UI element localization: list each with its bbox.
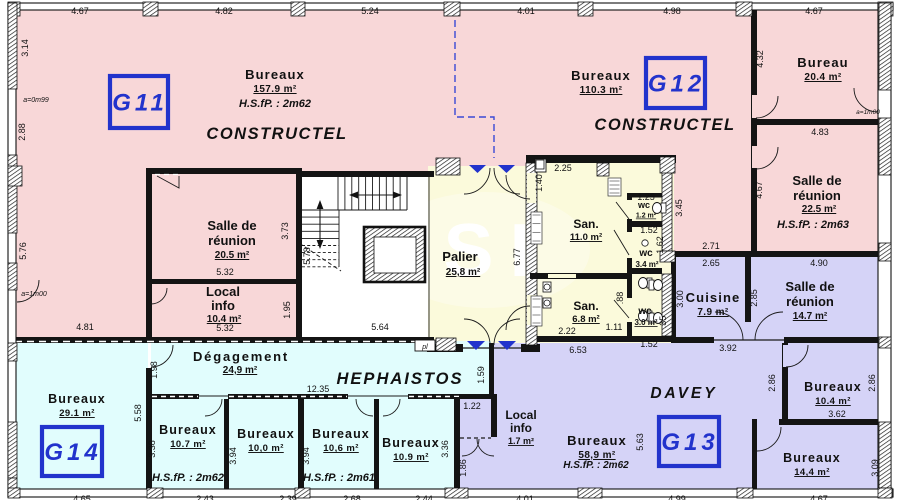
- svg-text:3.36: 3.36: [440, 440, 450, 458]
- svg-text:Salle de: Salle de: [207, 218, 256, 233]
- svg-text:Bureaux: Bureaux: [783, 451, 841, 465]
- svg-text:1.52: 1.52: [640, 225, 658, 235]
- svg-text:4.99: 4.99: [668, 494, 686, 500]
- svg-text:1.22: 1.22: [463, 401, 481, 411]
- svg-text:10,0 m²: 10,0 m²: [248, 443, 284, 454]
- svg-text:4.01: 4.01: [517, 6, 535, 16]
- svg-text:5.58: 5.58: [133, 404, 143, 422]
- svg-text:24,9 m²: 24,9 m²: [223, 365, 258, 376]
- svg-text:10.7 m²: 10.7 m²: [170, 439, 206, 450]
- svg-text:5.24: 5.24: [361, 6, 379, 16]
- svg-text:14,4 m²: 14,4 m²: [794, 467, 830, 478]
- svg-text:a=1m00: a=1m00: [21, 291, 47, 298]
- svg-text:a=1m00: a=1m00: [856, 109, 880, 116]
- svg-text:San.: San.: [573, 299, 598, 313]
- svg-text:2.25: 2.25: [554, 163, 572, 173]
- svg-text:5.63: 5.63: [635, 433, 645, 451]
- svg-text:25,8 m²: 25,8 m²: [446, 267, 481, 278]
- svg-text:3.38: 3.38: [147, 440, 157, 458]
- svg-text:Palier: Palier: [442, 249, 477, 264]
- svg-text:Bureaux: Bureaux: [382, 436, 440, 450]
- svg-text:wc: wc: [638, 248, 653, 259]
- svg-text:20.5 m²: 20.5 m²: [215, 250, 250, 261]
- svg-text:Bureaux: Bureaux: [567, 433, 627, 448]
- svg-text:a=0m99: a=0m99: [23, 97, 49, 104]
- svg-text:Local: Local: [505, 408, 536, 422]
- svg-text:info: info: [510, 421, 532, 435]
- svg-text:4.83: 4.83: [811, 127, 829, 137]
- svg-text:6.77: 6.77: [512, 248, 522, 266]
- svg-text:29.1 m²: 29.1 m²: [59, 408, 95, 419]
- svg-text:1.7 m²: 1.7 m²: [508, 436, 534, 446]
- svg-text:110.3 m²: 110.3 m²: [580, 85, 623, 96]
- svg-text:.35: .35: [658, 316, 668, 329]
- svg-text:.88: .88: [615, 292, 625, 305]
- svg-text:H.S.fP. : 2m62: H.S.fP. : 2m62: [563, 460, 629, 471]
- svg-text:wc: wc: [637, 306, 652, 317]
- svg-text:San.: San.: [573, 217, 598, 231]
- svg-text:1.95: 1.95: [282, 301, 292, 319]
- svg-text:4.67: 4.67: [754, 181, 764, 199]
- svg-text:3.14: 3.14: [20, 39, 30, 57]
- svg-text:G11: G11: [112, 90, 168, 117]
- svg-text:CONSTRUCTEL: CONSTRUCTEL: [206, 125, 347, 143]
- svg-text:2.44: 2.44: [415, 494, 433, 500]
- svg-text:2.22: 2.22: [558, 326, 576, 336]
- svg-text:2.65: 2.65: [702, 258, 720, 268]
- svg-text:info: info: [211, 298, 235, 313]
- svg-text:DAVEY: DAVEY: [650, 385, 717, 402]
- svg-text:Cuisine: Cuisine: [686, 290, 741, 305]
- svg-text:CONSTRUCTEL: CONSTRUCTEL: [594, 116, 735, 134]
- svg-text:H.S.fP. : 2m61: H.S.fP. : 2m61: [303, 472, 375, 484]
- svg-text:Bureaux: Bureaux: [237, 427, 295, 441]
- svg-text:3.4 m²: 3.4 m²: [635, 260, 658, 269]
- svg-text:2.86: 2.86: [767, 374, 777, 392]
- svg-text:G14: G14: [44, 439, 101, 466]
- svg-text:Salle de: Salle de: [792, 173, 841, 188]
- svg-text:22.5 m²: 22.5 m²: [802, 204, 837, 215]
- svg-text:réunion: réunion: [208, 233, 256, 248]
- svg-text:G12: G12: [648, 71, 705, 98]
- svg-text:10.4 m²: 10.4 m²: [815, 396, 851, 407]
- svg-text:4.67: 4.67: [810, 494, 828, 500]
- svg-text:3.92: 3.92: [719, 343, 737, 353]
- svg-text:1.59: 1.59: [476, 366, 486, 384]
- svg-text:réunion: réunion: [786, 294, 834, 309]
- svg-text:4.98: 4.98: [663, 6, 681, 16]
- svg-text:20.4 m²: 20.4 m²: [804, 72, 842, 83]
- svg-text:3.62: 3.62: [828, 409, 846, 419]
- svg-text:Dégagement: Dégagement: [193, 349, 289, 364]
- svg-text:pl: pl: [421, 344, 428, 351]
- svg-text:2.71: 2.71: [702, 241, 720, 251]
- svg-text:1.11: 1.11: [606, 322, 623, 332]
- svg-text:G13: G13: [661, 429, 718, 456]
- svg-text:H.S.fP. : 2m62: H.S.fP. : 2m62: [239, 98, 311, 110]
- svg-text:4.32: 4.32: [755, 50, 765, 68]
- svg-text:1.86: 1.86: [458, 459, 468, 477]
- svg-text:3.73: 3.73: [280, 222, 290, 240]
- svg-text:3.45: 3.45: [674, 199, 684, 217]
- svg-text:3.94: 3.94: [228, 447, 238, 465]
- svg-text:3.00: 3.00: [675, 290, 685, 308]
- svg-text:5.32: 5.32: [216, 267, 234, 277]
- svg-text:4.67: 4.67: [805, 6, 823, 16]
- svg-text:4.90: 4.90: [810, 258, 828, 268]
- svg-text:4.01: 4.01: [516, 494, 534, 500]
- svg-text:Bureaux: Bureaux: [159, 423, 217, 437]
- svg-text:5.64: 5.64: [371, 322, 389, 332]
- svg-text:157.9 m²: 157.9 m²: [253, 84, 296, 95]
- svg-text:6.8 m²: 6.8 m²: [572, 314, 599, 325]
- svg-text:4.65: 4.65: [73, 494, 91, 500]
- svg-text:1.98: 1.98: [149, 361, 159, 379]
- svg-text:6.53: 6.53: [569, 345, 587, 355]
- svg-text:4.81: 4.81: [76, 322, 94, 332]
- svg-text:Bureaux: Bureaux: [312, 427, 370, 441]
- svg-text:3.09: 3.09: [870, 459, 880, 477]
- svg-text:1.25: 1.25: [637, 192, 655, 202]
- svg-text:1.52: 1.52: [640, 339, 658, 349]
- svg-text:10.9 m²: 10.9 m²: [393, 452, 429, 463]
- svg-text:3.94: 3.94: [301, 447, 311, 465]
- svg-text:4.82: 4.82: [215, 6, 233, 16]
- svg-text:1.40: 1.40: [534, 174, 544, 192]
- svg-text:HEPHAISTOS: HEPHAISTOS: [337, 370, 464, 388]
- svg-text:5.78: 5.78: [302, 247, 312, 265]
- svg-text:Bureaux: Bureaux: [245, 67, 305, 82]
- svg-text:2.88: 2.88: [17, 123, 27, 141]
- svg-text:4.67: 4.67: [71, 6, 89, 16]
- svg-text:5.32: 5.32: [216, 323, 234, 333]
- svg-text:10,6 m²: 10,6 m²: [323, 443, 359, 454]
- svg-text:Bureaux: Bureaux: [48, 392, 106, 406]
- svg-text:7.9 m²: 7.9 m²: [697, 307, 729, 318]
- svg-text:Bureaux: Bureaux: [571, 68, 631, 83]
- svg-text:réunion: réunion: [793, 188, 841, 203]
- svg-text:Bureaux: Bureaux: [804, 380, 862, 394]
- svg-text:Bureau: Bureau: [797, 55, 848, 70]
- svg-text:Salle de: Salle de: [785, 279, 834, 294]
- svg-text:2.86: 2.86: [867, 374, 877, 392]
- svg-text:11.0 m²: 11.0 m²: [570, 232, 602, 243]
- svg-text:H.S.fP. : 2m63: H.S.fP. : 2m63: [777, 219, 849, 231]
- svg-text:Local: Local: [206, 284, 240, 299]
- svg-text:12.35: 12.35: [307, 384, 330, 394]
- svg-text:2.39: 2.39: [279, 494, 297, 500]
- svg-text:2.85: 2.85: [749, 289, 759, 307]
- svg-text:5.76: 5.76: [18, 242, 28, 260]
- svg-text:2.68: 2.68: [343, 494, 361, 500]
- svg-text:H.S.fP. : 2m62: H.S.fP. : 2m62: [152, 472, 224, 484]
- svg-text:14.7 m²: 14.7 m²: [793, 311, 828, 322]
- svg-text:1.2 m²: 1.2 m²: [636, 213, 657, 220]
- svg-text:2.43: 2.43: [196, 494, 214, 500]
- svg-text:3.0 m²: 3.0 m²: [634, 318, 657, 327]
- svg-text:1.62: 1.62: [655, 236, 665, 254]
